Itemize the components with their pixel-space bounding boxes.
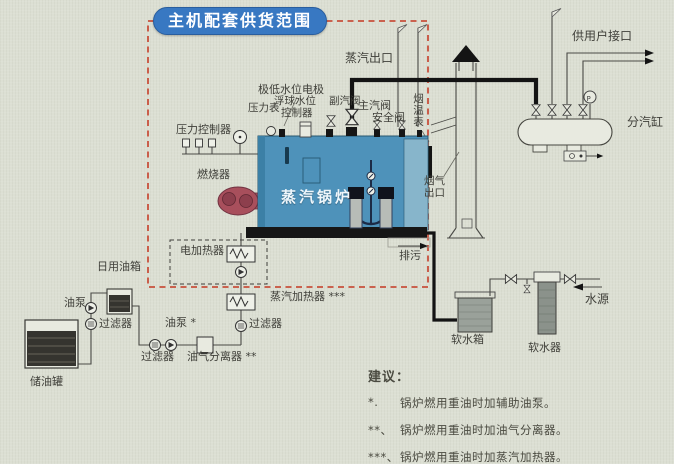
feed-water-pipe — [427, 233, 457, 320]
filter-icon — [86, 319, 97, 330]
chimney-cap-icon — [452, 45, 480, 62]
cylinder-valve-icon — [548, 105, 556, 116]
note-marker: **、 — [368, 422, 400, 438]
label-oil-pump-2: 油泵 * — [165, 317, 196, 329]
label-filter-3: 过滤器 — [249, 318, 282, 330]
pump-motor — [378, 187, 394, 199]
soft-water-tank — [455, 292, 495, 332]
label-float-controller-2: 控制器 — [281, 107, 313, 119]
electrode-nozzle-icon — [279, 129, 285, 137]
daily-oil-tank — [107, 289, 132, 314]
steam-heater-icon — [227, 294, 255, 310]
water-gauge-icon — [285, 147, 289, 164]
oil-pump-icon — [236, 267, 247, 278]
label-blowdown: 排污 — [399, 250, 421, 262]
label-steam-cylinder: 分汽缸 — [627, 116, 663, 128]
label-gauge-letter: P — [587, 93, 591, 105]
boiler-base — [246, 227, 427, 238]
note-marker: ***、 — [368, 449, 400, 464]
cylinder-valve-icon — [563, 105, 571, 116]
aux-steam-valve-icon — [327, 116, 335, 127]
label-pressure-controller: 压力控制器 — [176, 124, 231, 136]
water-valve-icon — [505, 275, 516, 284]
water-softener — [534, 272, 560, 334]
label-soft-water-tank: 软水箱 — [451, 334, 484, 346]
notes-heading: 建议： — [368, 366, 568, 385]
label-oil-gas-separator: 油气分离器 ** — [187, 351, 257, 363]
vent-flag-icon — [418, 25, 427, 34]
label-electric-heater: 电加热器 — [180, 245, 224, 257]
cylinder-valve-icon — [579, 105, 587, 116]
oil-pump-icon — [86, 303, 97, 314]
water-source-arrow-icon — [573, 284, 583, 291]
burner — [218, 187, 260, 215]
label-steam-outlet: 蒸汽出口 — [345, 52, 393, 64]
note-text: 锅炉燃用重油时加蒸汽加热器。 — [400, 449, 568, 464]
label-water-softener: 软水器 — [528, 342, 561, 354]
electric-heater-icon — [227, 246, 255, 262]
note-item: **、 锅炉燃用重油时加油气分离器。 — [368, 422, 568, 438]
label-storage-tank: 储油罐 — [30, 376, 63, 388]
note-marker: *. — [368, 395, 400, 411]
label-safety-valve: 安全阀 — [372, 112, 405, 124]
pump-body — [380, 198, 392, 228]
label-boiler-name: 蒸汽锅炉 — [281, 186, 353, 207]
filter-icon — [236, 321, 247, 332]
float-controller-icon — [300, 122, 311, 137]
label-aux-steam-valve: 副汽阀 — [329, 95, 361, 107]
label-user-interface: 供用户接口 — [572, 30, 632, 42]
cylinder-drain — [564, 151, 586, 161]
supply-arrow-icon — [645, 58, 654, 65]
label-daily-oil-tank: 日用油箱 — [97, 261, 141, 273]
note-item: ***、 锅炉燃用重油时加蒸汽加热器。 — [368, 449, 568, 464]
oil-storage-tank — [25, 320, 78, 368]
blowdown-arrow-icon — [420, 243, 428, 249]
diagram-linework — [0, 0, 674, 464]
pressure-gauge-icon — [267, 127, 276, 136]
main-steam-valve-icon — [346, 109, 358, 124]
note-text: 锅炉燃用重油时加辅助油泵。 — [400, 395, 556, 411]
label-steam-heater: 蒸汽加热器 *** — [270, 291, 345, 303]
note-item: *. 锅炉燃用重油时加辅助油泵。 — [368, 395, 568, 411]
cylinder-valve-icon — [532, 105, 540, 116]
label-float-controller: 浮球水位 — [274, 95, 316, 107]
water-valve-icon — [564, 275, 575, 284]
label-filter-2: 过滤器 — [141, 351, 174, 363]
vent-flag-icon — [552, 9, 561, 18]
oil-pump-icon — [166, 340, 177, 351]
filter-icon — [150, 340, 161, 351]
supply-arrow-icon — [645, 50, 654, 57]
label-water-source: 水源 — [585, 293, 609, 305]
label-filter-1: 过滤器 — [99, 318, 132, 330]
drain-arrow-icon — [597, 154, 603, 159]
label-flue-gas-outlet: 烟气出口 — [424, 176, 450, 199]
title-pill: 主机配套供货范围 — [153, 7, 327, 35]
label-burner: 燃烧器 — [197, 169, 230, 181]
notes-block: 建议： *. 锅炉燃用重油时加辅助油泵。 **、 锅炉燃用重油时加油气分离器。 … — [368, 366, 568, 464]
label-oil-pump-1: 油泵 — [64, 297, 86, 309]
water-valve-icon — [524, 285, 530, 293]
vent-flag-icon — [398, 25, 407, 34]
note-text: 锅炉燃用重油时加油气分离器。 — [400, 422, 568, 438]
label-flue-temp-gauge: 烟温表 — [412, 93, 424, 139]
boiler-system-diagram: 主机配套供货范围 蒸汽出口 供用户接口 分汽缸 极低水位电极 压力表 浮球水位 … — [0, 0, 674, 464]
